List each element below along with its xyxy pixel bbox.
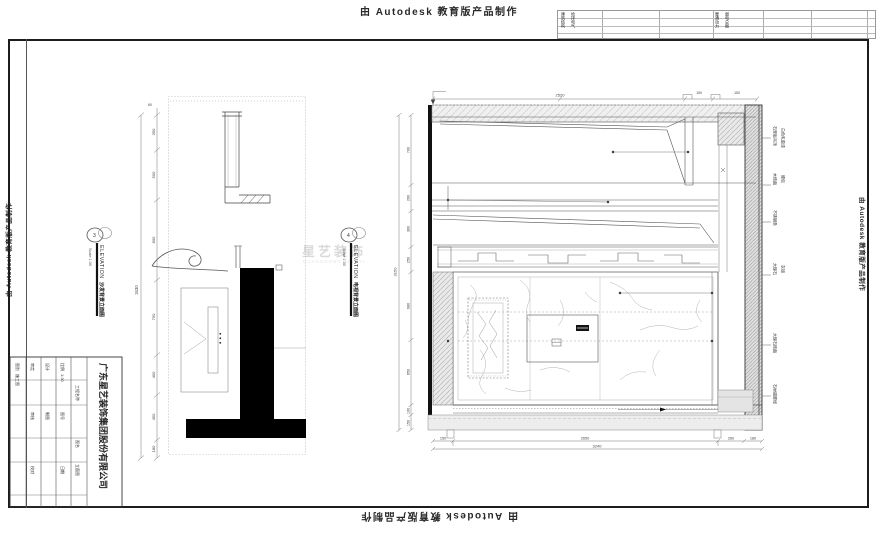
- signoff-table: 建筑结构 给排电气 暖通动力 弱电总图: [557, 10, 876, 39]
- material-label: 木饰面: [773, 173, 779, 185]
- left-elevation-dim-text: 60 350 500 800 750 400 450 180 3430: [134, 103, 156, 452]
- dim-total-label: 3430: [134, 285, 139, 295]
- dim-label: 150: [440, 437, 446, 441]
- elevation-title: ELEVATION: [98, 245, 104, 279]
- title-block-text: 广东星艺装饰集团股份有限公司 图别 施工图 审定 审核 校对 设计 制图 比例 …: [15, 363, 109, 489]
- dim-label: 250: [407, 257, 411, 263]
- left-elevation-dimensions: [138, 108, 160, 461]
- material-label: 石膏板吊顶: [773, 126, 779, 146]
- field-value: 立面图: [75, 464, 81, 476]
- dim-label: 400: [151, 371, 156, 378]
- left-elevation-solids: [186, 268, 306, 438]
- material-label: 大理石: [773, 263, 779, 275]
- left-elevation-drawing: 60 350 500 800 750 400 450 180 3430: [130, 85, 320, 470]
- field-value: 施工图: [15, 374, 21, 386]
- elevation-label-1: 3 ELEVATION Scale 1:30 沙发背景立面图: [85, 224, 125, 324]
- signoff-col: 弱电总图: [725, 12, 730, 38]
- field-label: 审定: [30, 363, 36, 371]
- field-value: 1:30: [60, 374, 65, 383]
- elevation-scale: Scale 1:30: [342, 248, 346, 266]
- right-elevation-structure: [428, 105, 762, 438]
- field-label: 制图: [45, 412, 51, 420]
- dim-label: 180: [151, 445, 156, 452]
- elevation-label-2: 4 ELEVATION Scale 1:30 电视背景立面图: [339, 224, 379, 324]
- dim-total-label: 3240: [593, 444, 603, 449]
- dim-label: 2520: [556, 93, 566, 98]
- field-label: 日期: [60, 466, 66, 474]
- meander-band: [458, 253, 700, 263]
- dim-label: 650: [407, 369, 411, 375]
- autodesk-stamp-bottom: 由 Autodesk 教育版产品制作: [0, 510, 878, 525]
- dim-label: 150: [407, 420, 411, 426]
- dim-label: 750: [151, 313, 156, 320]
- left-pilaster-hatch: [433, 272, 453, 405]
- drawing-sheet: 星艺装饰 GUANGDONG XINGYI 由 Autodesk 教育版产品制作…: [0, 0, 878, 540]
- material-label: 大理石饰面: [773, 333, 779, 353]
- dim-label: 150: [734, 91, 740, 95]
- dim-label: 360: [407, 226, 411, 232]
- dim-total-label: 3150: [393, 267, 398, 277]
- field-label: 比例: [60, 363, 66, 371]
- field-label: 审核: [30, 412, 36, 420]
- leader-markers: [447, 151, 713, 412]
- dim-label: 180: [750, 437, 756, 441]
- material-callouts: [762, 138, 771, 396]
- bubble-number: 3: [93, 233, 96, 239]
- company-name: 广东星艺装饰集团股份有限公司: [98, 363, 109, 489]
- material-label: 不锈钢条: [773, 210, 779, 226]
- field-label: 设计: [45, 363, 51, 371]
- dim-label: 680: [407, 303, 411, 309]
- material-label: 石材踢脚线: [773, 384, 779, 404]
- signoff-labels-2: 暖通动力 弱电总图: [715, 12, 730, 38]
- signoff-labels-1: 建筑结构 给排电气: [561, 12, 576, 38]
- signoff-col: 给排电气: [571, 12, 576, 38]
- field-label: 图别: [15, 363, 21, 371]
- right-elevation-dims-bottom-text: 150 2650 260 180 3240: [440, 437, 756, 449]
- dim-label: 350: [151, 128, 156, 135]
- material-label: 白色乳胶漆: [781, 128, 787, 148]
- elevation-scale: Scale 1:30: [88, 248, 92, 266]
- dim-label: 700: [407, 147, 411, 153]
- marble-wall: [453, 272, 718, 405]
- left-elevation-structure: [152, 112, 306, 392]
- floor-slab: [428, 415, 762, 430]
- niche-outline: [468, 298, 508, 378]
- field-label: 校对: [30, 466, 36, 474]
- marble-veins: [463, 280, 702, 394]
- dim-label: 60: [148, 103, 152, 107]
- right-elevation-drawing: 2520 150 150 700 260 360 250 680 650 100…: [390, 85, 810, 460]
- field-label: 图名: [75, 440, 81, 448]
- material-label: 硬包: [781, 175, 787, 183]
- material-callout-text: 石膏板吊顶 白色乳胶漆 木饰面 硬包 不锈钢条 大理石 灰镜 大理石饰面 石材踢…: [773, 126, 787, 404]
- signoff-col: 暖通动力: [715, 12, 720, 38]
- right-elevation-dims-left: [397, 113, 414, 432]
- black-column: [240, 268, 274, 420]
- dim-label: 100: [407, 408, 411, 414]
- ceiling-band: [432, 105, 756, 122]
- dim-label: 450: [151, 413, 156, 420]
- field-label: 图号: [60, 412, 66, 420]
- field-label: 工程名称: [75, 385, 81, 401]
- corner-block: [718, 113, 744, 145]
- elevation-title: ELEVATION: [352, 245, 358, 279]
- right-elevation-dims-top: [431, 92, 759, 105]
- right-elevation-dims-left-text: 700 260 360 250 680 650 100 150 3150: [393, 147, 411, 426]
- right-wall-band: [745, 105, 762, 430]
- dim-label: 800: [151, 236, 156, 243]
- dim-label: 150: [696, 91, 702, 95]
- material-label: 灰镜: [781, 265, 787, 273]
- dim-label: 260: [728, 437, 734, 441]
- scroll-ornament: [152, 249, 228, 271]
- wall-section-line: [428, 105, 432, 428]
- black-base: [186, 419, 306, 438]
- right-footing: [718, 390, 753, 412]
- elevation-caption: 电视背景立面图: [352, 282, 359, 317]
- dim-label: 2650: [581, 437, 589, 441]
- bubble-number: 4: [347, 233, 350, 239]
- title-block: 广东星艺装饰集团股份有限公司 图别 施工图 审定 审核 校对 设计 制图 比例 …: [8, 355, 128, 510]
- dim-label: 260: [407, 195, 411, 201]
- dim-label: 500: [151, 171, 156, 178]
- left-elevation-outline: [169, 97, 306, 455]
- tv-outline: [527, 315, 598, 362]
- signoff-col: 建筑结构: [561, 12, 566, 38]
- elevation-caption: 沙发背景立面图: [98, 282, 105, 317]
